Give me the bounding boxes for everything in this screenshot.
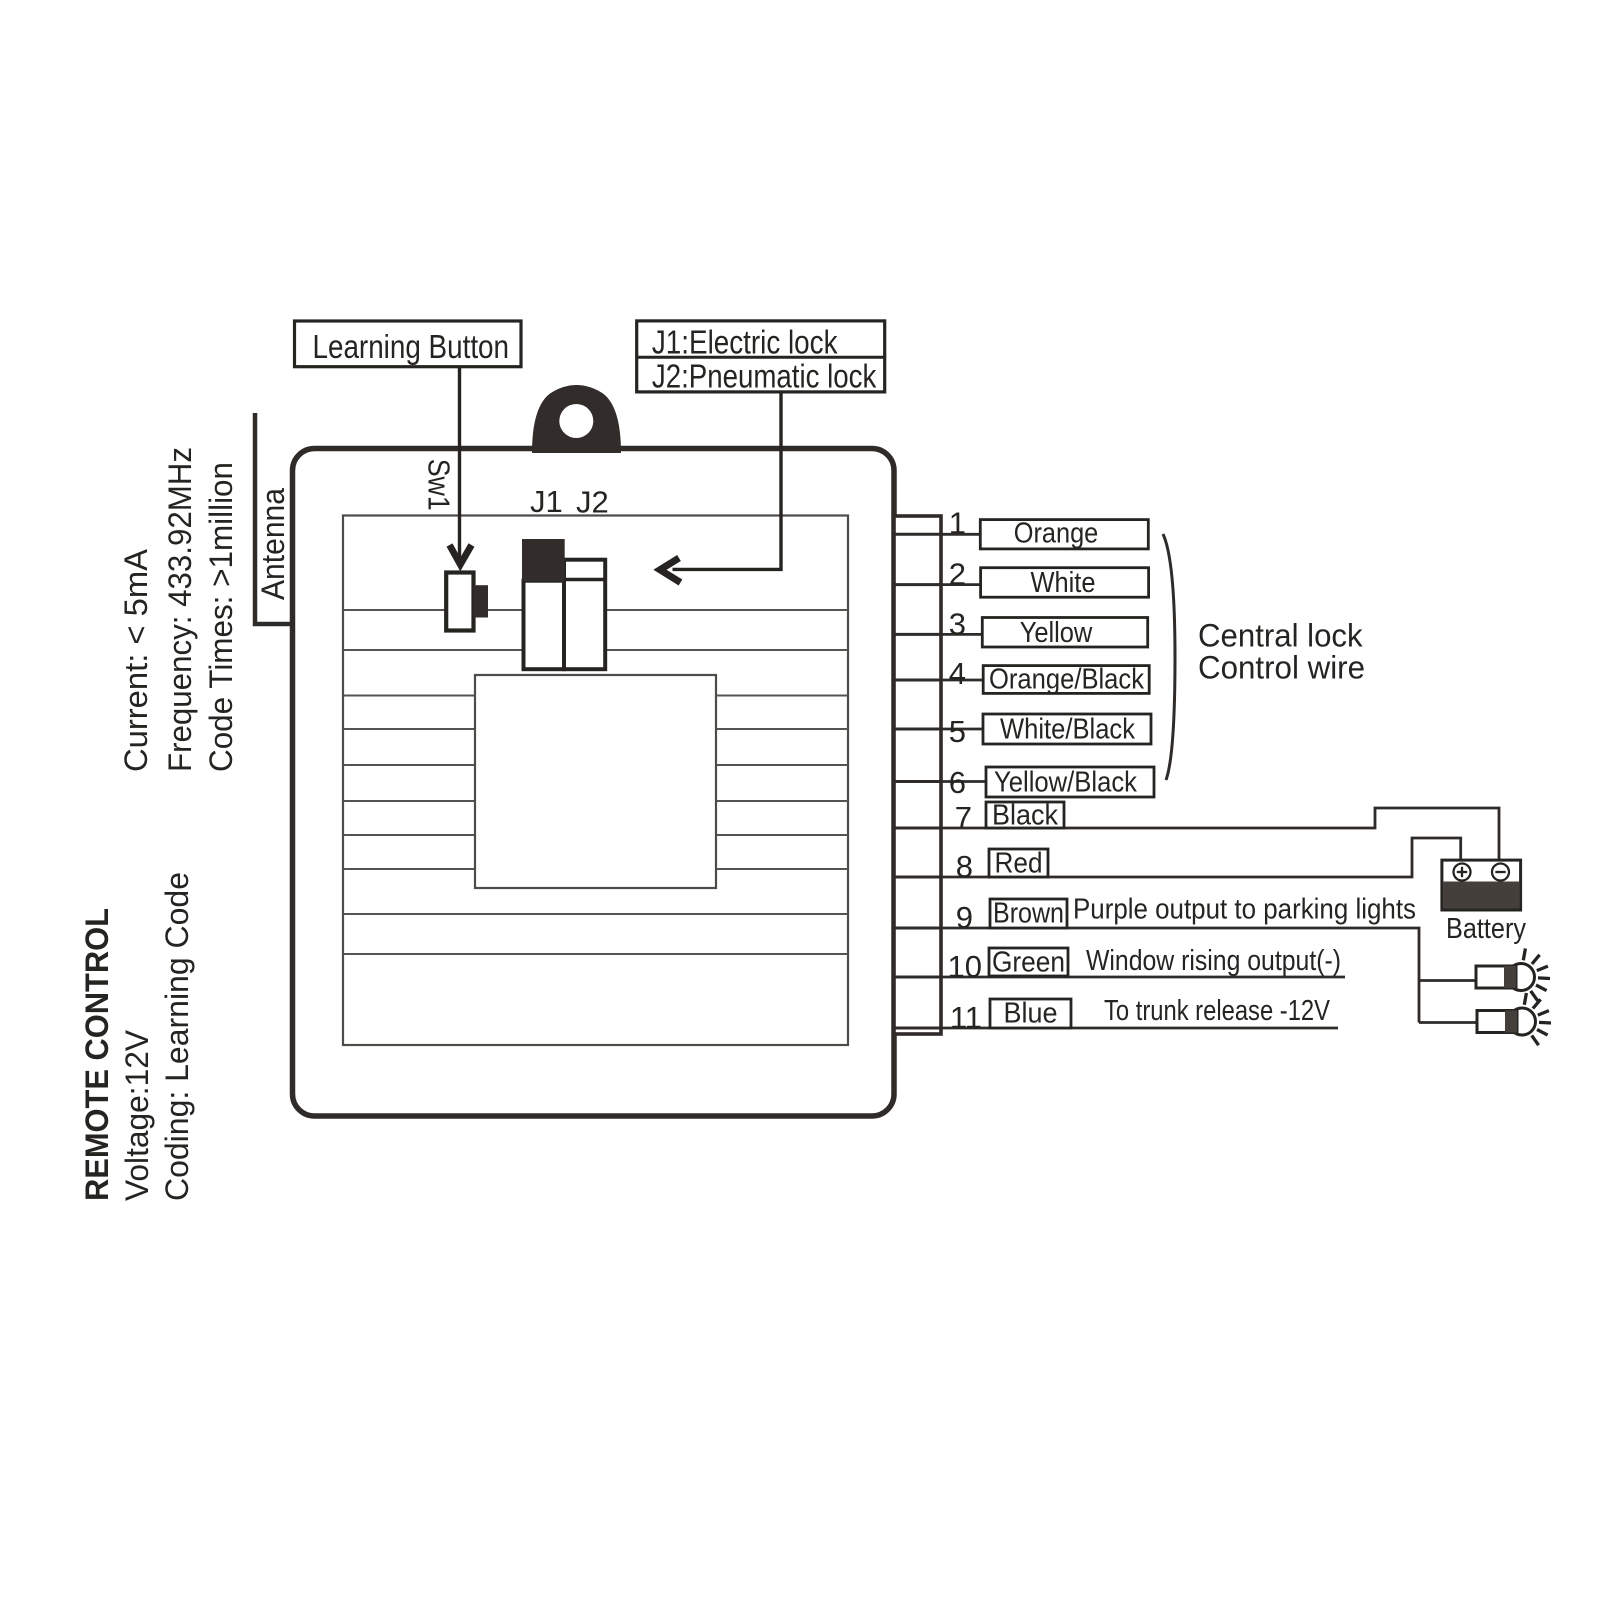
- svg-text:Coding: Learning Code: Coding: Learning Code: [159, 872, 195, 1201]
- svg-text:REMOTE CONTROL: REMOTE CONTROL: [79, 908, 115, 1201]
- svg-text:11: 11: [950, 1000, 982, 1035]
- svg-text:To trunk release -12V: To trunk release -12V: [1104, 995, 1330, 1027]
- svg-text:Battery: Battery: [1446, 913, 1526, 945]
- svg-text:J2: J2: [576, 485, 609, 520]
- svg-text:4: 4: [949, 656, 966, 691]
- svg-text:6: 6: [949, 765, 966, 800]
- svg-text:Window rising output(-): Window rising output(-): [1086, 945, 1341, 977]
- svg-text:White/Black: White/Black: [1000, 714, 1136, 746]
- svg-text:Sw1: Sw1: [422, 459, 457, 511]
- svg-text:Yellow: Yellow: [1020, 617, 1093, 649]
- svg-text:Blue: Blue: [1004, 998, 1058, 1030]
- svg-text:Voltage:12V: Voltage:12V: [119, 1029, 155, 1201]
- svg-text:Frequency: 433.92MHz: Frequency: 433.92MHz: [162, 447, 198, 772]
- svg-text:J1: J1: [530, 484, 563, 519]
- svg-text:Central lock: Central lock: [1198, 617, 1364, 653]
- svg-text:White: White: [1031, 567, 1096, 599]
- svg-text:2: 2: [949, 557, 966, 592]
- svg-text:Code Times: >1million: Code Times: >1million: [203, 462, 239, 772]
- svg-text:Black: Black: [992, 800, 1059, 832]
- svg-text:J1:Electric lock: J1:Electric lock: [652, 323, 838, 360]
- svg-text:9: 9: [956, 900, 973, 935]
- svg-text:Yellow/Black: Yellow/Black: [994, 767, 1138, 799]
- svg-text:Orange: Orange: [1014, 517, 1099, 549]
- svg-text:J2:Pneumatic lock: J2:Pneumatic lock: [652, 357, 877, 394]
- svg-text:Control wire: Control wire: [1198, 650, 1365, 686]
- svg-text:Antenna: Antenna: [255, 488, 291, 600]
- svg-text:Orange/Black: Orange/Black: [989, 663, 1145, 695]
- svg-text:10: 10: [948, 949, 982, 984]
- svg-text:Current: < 5mA: Current: < 5mA: [118, 548, 154, 772]
- svg-text:Green: Green: [992, 947, 1065, 979]
- svg-text:Purple output to parking light: Purple output to parking lights: [1073, 893, 1416, 925]
- svg-text:Red: Red: [995, 848, 1043, 880]
- svg-text:Brown: Brown: [993, 898, 1064, 930]
- svg-text:5: 5: [949, 714, 966, 749]
- svg-text:7: 7: [955, 800, 972, 835]
- svg-text:8: 8: [956, 849, 973, 884]
- svg-text:1: 1: [949, 506, 966, 541]
- svg-text:3: 3: [949, 606, 966, 641]
- svg-text:Learning Button: Learning Button: [313, 328, 510, 365]
